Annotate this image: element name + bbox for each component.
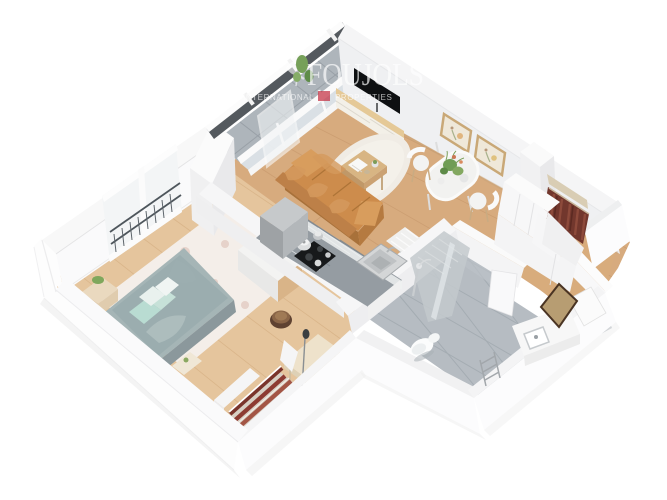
- svg-text:PROPERTIES: PROPERTIES: [335, 93, 392, 102]
- svg-text:FOUJOLS: FOUJOLS: [307, 56, 424, 92]
- svg-text:INTERNATIONAL: INTERNATIONAL: [243, 93, 314, 102]
